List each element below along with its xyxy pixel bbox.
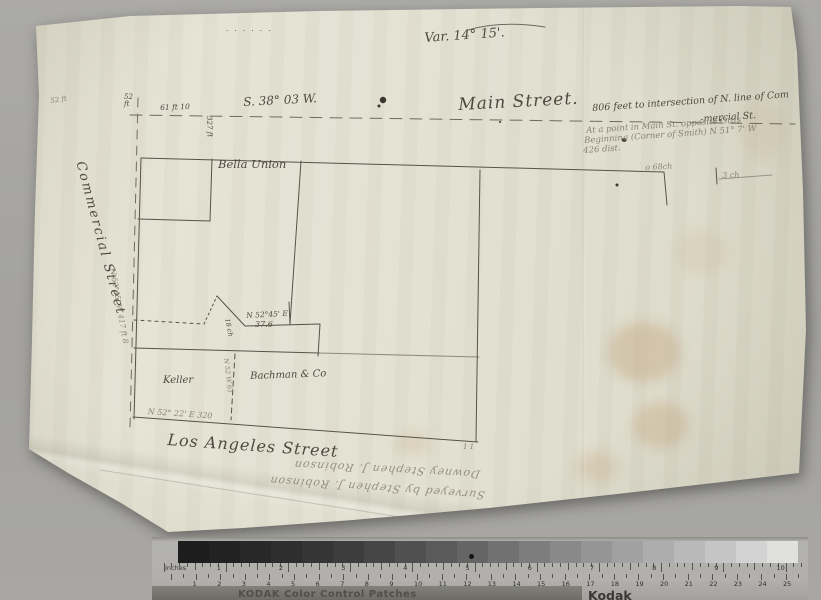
bachman-north-line-east	[319, 353, 479, 357]
inch-tick	[490, 563, 491, 567]
cm-tick	[380, 574, 381, 578]
inch-tick	[257, 563, 258, 570]
inch-tick	[506, 563, 507, 570]
cm-tick	[405, 574, 406, 578]
cm-tick	[356, 574, 357, 578]
inch-tick	[521, 563, 522, 567]
dots-row: · · · · · ·	[226, 28, 272, 35]
paper-crease-diagonal	[7, 401, 494, 555]
inch-tick	[373, 563, 374, 567]
variation-note: Var. 14° 15'.	[424, 26, 505, 45]
kodak-strip-text: KODAK Color Control Patches	[238, 589, 417, 600]
cm-tick	[774, 574, 775, 578]
cm-tick	[331, 574, 332, 578]
inch-tick	[241, 563, 242, 567]
inch-tick	[420, 563, 421, 567]
inch-number: 9	[714, 564, 718, 572]
ink-speck	[719, 119, 721, 121]
inch-tick	[723, 563, 724, 572]
signature-line1: Downey Stephen J. Robinson	[249, 456, 481, 479]
inch-number: 4	[403, 564, 407, 572]
stain	[396, 432, 430, 454]
inch-number: 1	[217, 564, 221, 572]
ink-speck	[499, 121, 501, 123]
cm-number: 21	[685, 580, 693, 588]
inch-tick	[288, 563, 289, 572]
photograph-of-survey-map: · · · · · · Var. 14° 15'. S. 38° 03 W. M…	[0, 0, 821, 600]
signature-line2: Surveyed by Stephen J. Robinson	[224, 471, 486, 501]
bottom-bearing: N 52° 22' E 320	[147, 408, 212, 421]
bella-union-label: Bella Union	[218, 158, 286, 170]
inch-tick	[249, 563, 250, 567]
cm-tick	[602, 574, 603, 578]
main-street-centerline	[130, 115, 795, 124]
inch-tick	[770, 563, 771, 567]
kodak-ruler-card: 1234567891012345678910111213141516171819…	[152, 537, 808, 600]
inch-tick	[366, 563, 367, 567]
paper-crease-vertical	[581, 0, 587, 540]
inch-tick	[296, 563, 297, 567]
pencil-note-line3: 426 dist.	[583, 144, 621, 156]
inch-tick	[412, 563, 413, 572]
west-line-dimension: N 52°45' W 417 ft 8	[108, 268, 129, 344]
commercial-street-label: Commercial Street	[73, 160, 127, 317]
cm-number: 23	[734, 580, 742, 588]
inch-tick	[265, 563, 266, 567]
cm-tick	[454, 574, 455, 578]
ink-speck	[378, 105, 381, 108]
cm-tick	[749, 574, 750, 578]
cm-tick	[233, 574, 234, 578]
cm-tick	[626, 574, 627, 578]
chain-faint-line	[719, 175, 772, 179]
cm-tick	[700, 574, 701, 578]
inch-tick	[801, 563, 802, 567]
inch-tick	[202, 563, 203, 567]
inch-tick	[786, 563, 787, 572]
inch-tick	[669, 563, 670, 567]
inch-tick	[482, 563, 483, 567]
inch-tick	[327, 563, 328, 567]
cm-tick	[306, 574, 307, 578]
inch-tick	[568, 563, 569, 570]
survey-map-sheet: · · · · · · Var. 14° 15'. S. 38° 03 W. M…	[0, 0, 821, 600]
chain-tick	[716, 168, 717, 184]
corner-mark-52: 52	[124, 94, 133, 101]
inch-tick	[793, 563, 794, 567]
cm-tick	[651, 574, 652, 578]
division-bearing: N 52 W 61	[222, 358, 233, 394]
flourish-line	[468, 24, 545, 30]
inch-tick	[389, 563, 390, 567]
cm-tick	[171, 574, 172, 580]
inch-tick	[677, 563, 678, 567]
inch-tick	[607, 563, 608, 567]
inch-tick	[700, 563, 701, 567]
commercial-street-centerline	[130, 98, 138, 428]
pencil-note-line2: Beginning (Corner of Smith) N 51° 7' W	[584, 125, 757, 146]
inch-tick	[599, 563, 600, 572]
inches-label: Inches	[165, 564, 186, 572]
cm-number: 22	[709, 580, 717, 588]
block-west-boundary	[134, 158, 141, 419]
inch-tick	[622, 563, 623, 567]
ink-speck	[380, 97, 386, 103]
zigzag-diagonal-line	[217, 296, 245, 326]
inch-tick	[762, 563, 763, 567]
stain	[742, 104, 784, 158]
paper-sheet-wrap: · · · · · · Var. 14° 15'. S. 38° 03 W. M…	[0, 0, 821, 600]
stain	[575, 452, 617, 482]
inch-number: 2	[279, 564, 283, 572]
mid-corner-tick	[289, 302, 290, 324]
inch-tick	[692, 563, 693, 570]
inch-tick	[638, 563, 639, 567]
marks-11: 1 1	[463, 444, 474, 451]
far-left-mark: 52 ft	[50, 96, 67, 106]
dim-3ch: 3 ch	[722, 171, 740, 180]
inch-tick	[311, 563, 312, 567]
cm-tick	[479, 574, 480, 578]
los-angeles-street-line	[133, 417, 478, 442]
bella-union-east-line	[290, 161, 301, 324]
inch-tick	[498, 563, 499, 567]
cm-number: 20	[660, 580, 668, 588]
cm-tick	[183, 574, 184, 578]
zigzag-dotted-line	[204, 296, 217, 324]
bachman-label: Bachman & Co	[250, 369, 326, 382]
cm-tick	[552, 574, 553, 578]
inch-tick	[684, 563, 685, 567]
cm-tick	[208, 574, 209, 578]
inch-number: 3	[341, 564, 345, 572]
cm-number: 25	[783, 580, 791, 588]
block-north-boundary	[141, 158, 664, 172]
mid-bearing: N 52°45' E	[246, 310, 288, 320]
corner-mark-ft: ft	[124, 101, 129, 108]
cm-tick	[675, 574, 676, 578]
dim-327ft: 327 ft	[205, 116, 213, 137]
inch-tick	[739, 563, 740, 567]
inch-tick	[459, 563, 460, 567]
inch-tick	[210, 563, 211, 567]
inch-tick	[552, 563, 553, 567]
cm-number: 24	[758, 580, 766, 588]
cm-tick	[429, 574, 430, 578]
inch-tick	[397, 563, 398, 567]
inch-tick	[335, 563, 336, 567]
inch-tick	[731, 563, 732, 567]
inch-tick	[272, 563, 273, 567]
dim-18ch: 18 ch	[223, 318, 233, 337]
cm-tick	[577, 574, 578, 578]
ink-speck	[622, 138, 626, 142]
inch-tick	[646, 563, 647, 567]
cm-number: 18	[611, 580, 619, 588]
inch-tick	[560, 563, 561, 567]
cm-tick	[528, 574, 529, 578]
dim-61ft: 61 ft 10	[160, 103, 190, 112]
main-street-bearing: S. 38° 03 W.	[243, 92, 317, 108]
inch-tick	[303, 563, 304, 567]
inch-tick	[475, 563, 476, 572]
cm-number: 17	[586, 580, 594, 588]
inch-tick	[544, 563, 545, 567]
ink-speck	[616, 184, 619, 187]
inch-tick	[436, 563, 437, 567]
inch-tick	[358, 563, 359, 567]
mid-dashed-line	[134, 320, 204, 324]
color-control-strip: KODAK Color Control Patches	[152, 586, 582, 600]
fold-faint-line	[100, 470, 470, 528]
mid-horizontal-line	[245, 324, 320, 326]
dim-376: 37.6	[255, 321, 273, 329]
inch-number: 5	[466, 564, 470, 572]
inch-tick	[233, 563, 234, 567]
inch-tick	[443, 563, 444, 570]
cm-tick	[257, 574, 258, 578]
cm-tick	[725, 574, 726, 578]
kodak-logo: Kodak	[588, 588, 632, 600]
cm-number: 19	[635, 580, 643, 588]
inch-tick	[576, 563, 577, 567]
bella-union-notch-line	[138, 219, 210, 221]
main-street-label: Main Street.	[458, 91, 579, 115]
inch-tick	[614, 563, 615, 567]
cm-tick	[798, 574, 799, 578]
bella-union-west-line	[210, 159, 212, 221]
plat-linework	[0, 0, 821, 600]
inch-number: 7	[590, 564, 594, 572]
inch-tick	[381, 563, 382, 570]
inch-tick	[226, 563, 227, 572]
pencil-note-line1: At a point in Main St. opposite Ords	[586, 116, 741, 136]
inch-number: 6	[528, 564, 532, 572]
inch-tick	[630, 563, 631, 570]
inch-tick	[754, 563, 755, 570]
annotation-line2: -mercial St.	[700, 111, 756, 125]
stain	[633, 402, 689, 448]
stain	[676, 232, 728, 274]
cm-tick	[282, 574, 283, 578]
inch-tick	[708, 563, 709, 567]
dim-68ch: o 68ch	[645, 163, 673, 173]
inch-tick	[513, 563, 514, 567]
inch-tick	[428, 563, 429, 567]
keller-bachman-north-line	[134, 348, 319, 353]
inch-tick	[537, 563, 538, 572]
cm-tick	[503, 574, 504, 578]
inch-tick	[661, 563, 662, 572]
inch-tick	[350, 563, 351, 572]
inch-number: 8	[652, 564, 656, 572]
inch-number: 10	[777, 564, 785, 572]
los-angeles-street-label: Los Angeles Street	[167, 432, 339, 461]
inch-tick	[747, 563, 748, 567]
inch-tick	[187, 563, 188, 567]
annotation-line1: 806 feet to intersection of N. line of C…	[592, 90, 789, 114]
keller-bachman-division-line	[231, 354, 235, 420]
stain	[608, 322, 680, 382]
inch-tick	[319, 563, 320, 570]
keller-label: Keller	[163, 376, 193, 387]
inch-tick	[195, 563, 196, 570]
inch-tick	[583, 563, 584, 567]
bachman-east-boundary	[476, 170, 480, 441]
inch-tick	[451, 563, 452, 567]
mid-short-vertical	[318, 324, 320, 356]
block-northeast-tick	[664, 172, 667, 205]
